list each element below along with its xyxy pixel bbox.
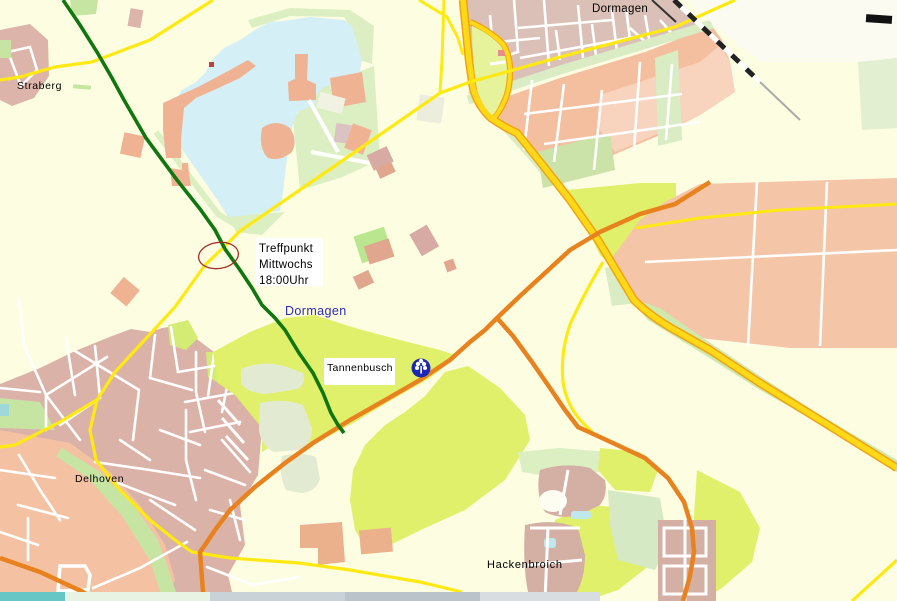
- svg-text:Treffpunkt: Treffpunkt: [259, 243, 314, 255]
- svg-text:Mittwochs: Mittwochs: [259, 259, 313, 271]
- svg-text:Dormagen: Dormagen: [592, 3, 648, 15]
- svg-text:Tannenbusch: Tannenbusch: [327, 362, 393, 374]
- svg-text:Straberg: Straberg: [17, 80, 62, 92]
- svg-text:Hackenbroich: Hackenbroich: [487, 559, 563, 571]
- svg-text:Delhoven: Delhoven: [75, 473, 124, 485]
- svg-text:18:00Uhr: 18:00Uhr: [259, 275, 309, 287]
- svg-text:Dormagen: Dormagen: [285, 304, 347, 318]
